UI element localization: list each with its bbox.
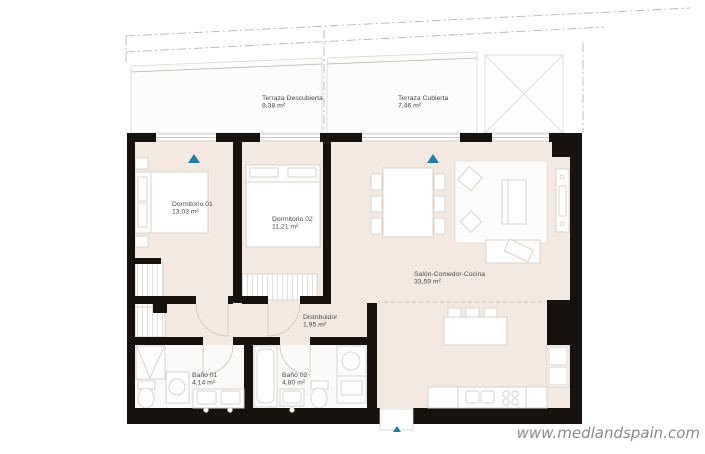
label-terraza-descubierta: Terraza Descubierta (262, 95, 323, 102)
terrace-cubierta (327, 52, 477, 133)
washing-machine-bano01 (166, 372, 189, 403)
wall-unit-right (556, 169, 569, 232)
area-distribuidor: 1,95 m² (303, 322, 327, 329)
window-salon (492, 133, 549, 142)
sliding-door-salon (362, 133, 460, 142)
area-dormitorio-02: 11,21 m² (272, 224, 299, 231)
area-dormitorio-01: 13,03 m² (172, 209, 200, 216)
label-distribuidor: Distribuidor (303, 314, 338, 321)
label-dormitorio-02: Dormitorio 02 (272, 216, 313, 223)
bathtub-bano02 (254, 346, 277, 407)
label-salon: Salón-Comedor-Cocina (414, 271, 485, 278)
nightstand-dorm01-b (135, 236, 148, 247)
kitchen-counter-bottom (428, 387, 547, 408)
floor-plan-drawing: Terraza Descubierta 8,38 m² Terraza Cubi… (0, 0, 705, 454)
utility-cabinet-bano02 (337, 346, 366, 403)
toilet-bano01 (138, 381, 155, 408)
label-bano-02: Baño 02 (282, 372, 308, 379)
window-dorm01 (156, 133, 216, 142)
dining-table-set (371, 168, 445, 237)
sofa-area (455, 161, 547, 243)
toilet-bano02 (311, 381, 328, 408)
area-terraza-descubierta: 8,38 m² (262, 103, 286, 110)
nightstand-dorm01-a (135, 158, 148, 169)
area-salon: 33,59 m² (414, 279, 442, 286)
label-dormitorio-01: Dormitorio 01 (172, 201, 213, 208)
window-dorm02 (260, 133, 320, 142)
area-bano-01: 4,14 m² (192, 380, 216, 387)
label-bano-01: Baño 01 (192, 372, 218, 379)
area-terraza-cubierta: 7,46 m² (398, 103, 422, 110)
label-terraza-cubierta: Terraza Cubierta (398, 95, 448, 102)
tv-bench (486, 239, 540, 263)
shower-bano01 (136, 346, 165, 379)
floor-plan-canvas: Terraza Descubierta 8,38 m² Terraza Cubi… (0, 0, 705, 454)
area-bano-02: 4,80 m² (282, 380, 306, 387)
watermark-text: www.medlandspain.com (517, 424, 700, 442)
bed-dorm02 (246, 165, 320, 247)
kitchen-counter-right (547, 345, 569, 387)
neighbor-terrace-void (485, 55, 563, 133)
